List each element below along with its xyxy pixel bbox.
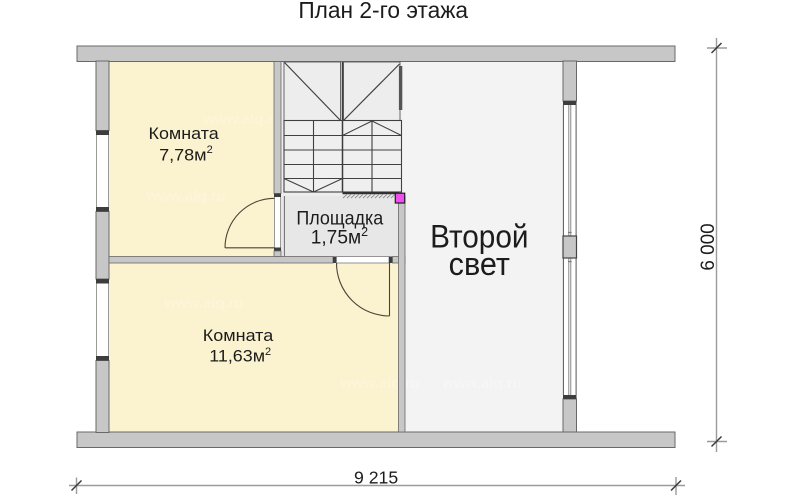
svg-text:9 215: 9 215 xyxy=(354,467,398,487)
svg-text:www.alq.ru: www.alq.ru xyxy=(339,375,419,392)
svg-text:6 000: 6 000 xyxy=(698,223,719,270)
svg-text:Площадка: Площадка xyxy=(296,209,383,230)
svg-text:Комната: Комната xyxy=(149,125,220,143)
svg-text:www.alq.ru: www.alq.ru xyxy=(145,188,225,205)
svg-text:Комната: Комната xyxy=(203,327,274,345)
svg-text:1,75м2: 1,75м2 xyxy=(311,225,368,249)
svg-text:www.alq.ru: www.alq.ru xyxy=(163,295,243,312)
svg-text:www.alq.ru: www.alq.ru xyxy=(441,375,521,392)
svg-text:11,63м2: 11,63м2 xyxy=(209,346,271,366)
svg-text:План 2-го этажа: План 2-го этажа xyxy=(298,0,468,23)
svg-text:7,78м2: 7,78м2 xyxy=(159,144,213,165)
svg-text:свет: свет xyxy=(449,246,511,282)
